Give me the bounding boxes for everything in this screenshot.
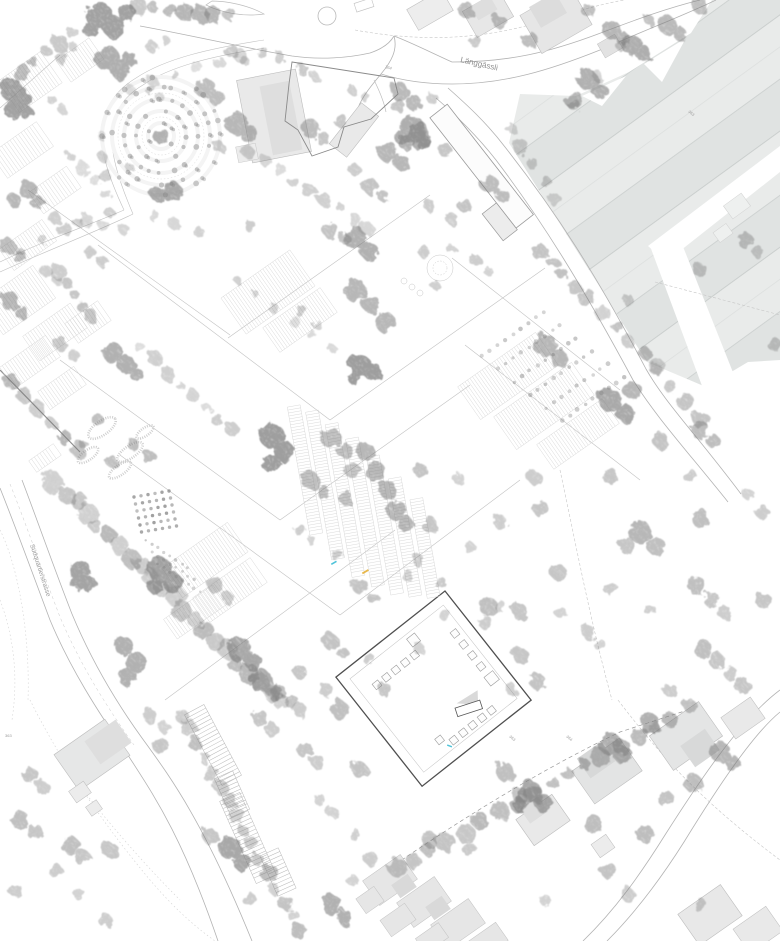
svg-text:363: 363: [5, 733, 12, 738]
